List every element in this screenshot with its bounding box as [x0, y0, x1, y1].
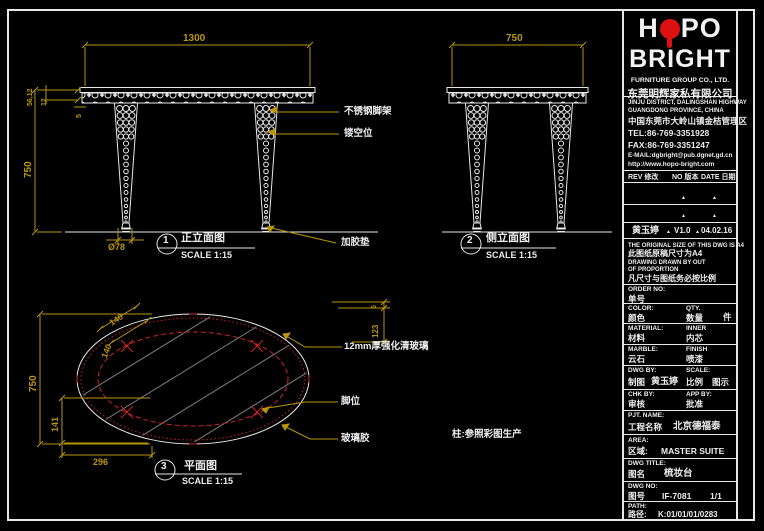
- rev-entry-version: V1.0: [674, 227, 690, 235]
- tblock-divider: [624, 170, 736, 171]
- logo-red-disc-icon: [660, 19, 680, 39]
- field-qty-label-cn: 数量: [686, 314, 703, 323]
- plan-dim-edge-a: 5: [371, 305, 378, 309]
- label-rubber-pad: 加胶垫: [341, 238, 370, 248]
- rev-entry-name: 黄玉婷: [632, 226, 659, 235]
- side-dim-width: 750: [506, 34, 523, 44]
- rev-header-no: NO 版本: [672, 174, 698, 181]
- field-path-label-cn: 路径:: [628, 511, 647, 519]
- logo-line2: BRIGHT: [624, 45, 736, 74]
- field-marble-label-cn: 云石: [628, 355, 645, 364]
- front-dim-top-a: 56,12: [27, 88, 34, 106]
- notice-line2: 此图纸原稿尺寸为A4: [628, 250, 702, 258]
- front-view-marker: 1: [163, 236, 169, 246]
- address-line2: GUANGDONG PROVINCE, CHINA: [628, 108, 724, 114]
- rev-header-rev: REV 修改: [628, 174, 658, 181]
- company-logo: H PO BRIGHT FURNITURE GROUP CO., LTD. 东莞…: [624, 13, 736, 101]
- field-scale-value: 图示: [712, 378, 729, 387]
- tblock-divider: [624, 481, 736, 482]
- tblock-divider: [624, 284, 736, 285]
- field-appby-label-en: APP BY:: [686, 392, 712, 399]
- field-dwgtitle-value: 梳妆台: [664, 469, 693, 479]
- field-material-label-en: MATERIAL:: [628, 326, 663, 333]
- rev-marker-icon: ▲: [681, 214, 686, 219]
- rev-marker-icon: ▲: [712, 196, 717, 201]
- side-view-marker: 2: [467, 236, 473, 246]
- field-area-value: MASTER SUITE: [661, 447, 724, 456]
- field-material-label-cn: 材料: [628, 334, 645, 343]
- label-hollow-position: 镂空位: [344, 129, 373, 139]
- front-dim-top-b: 12: [41, 98, 48, 106]
- side-view-title: 侧立面图: [486, 233, 530, 244]
- field-area-label-cn: 区域:: [628, 447, 648, 456]
- tblock-divider: [624, 182, 736, 183]
- notice-line5: 凡尺寸与图纸务必按比例: [628, 275, 716, 283]
- field-inner-label-en: INNER: [686, 326, 706, 333]
- tblock-divider: [624, 410, 736, 411]
- front-view-scale: SCALE 1:15: [181, 251, 232, 260]
- label-tempered-glass: 12mm厚强化清玻璃: [344, 342, 428, 352]
- field-project-label-cn: 工程名称: [628, 423, 662, 432]
- rev-marker-icon: ▲: [681, 196, 686, 201]
- tblock-divider: [624, 204, 736, 205]
- field-color-label-cn: 颜色: [628, 314, 645, 323]
- logo-letter-h: H: [638, 13, 659, 44]
- field-dwgno-sheet: 1/1: [710, 492, 722, 501]
- field-project-label-en: PJT. NAME:: [628, 413, 664, 420]
- front-dim-top-c: 5: [76, 114, 83, 118]
- address-line3: 中国东莞市大岭山镇金桔管理区: [628, 117, 747, 126]
- rev-marker-icon: ▲: [666, 230, 671, 235]
- field-appby-label-cn: 批准: [686, 400, 703, 409]
- logo-subtitle-en: FURNITURE GROUP CO., LTD.: [624, 77, 736, 84]
- field-qty-unit: 件: [723, 313, 732, 322]
- field-dwgtitle-label-en: DWG TITLE:: [628, 461, 666, 468]
- plan-view-marker: 3: [161, 462, 167, 472]
- tblock-divider: [624, 458, 736, 459]
- front-dim-width: 1300: [183, 34, 205, 44]
- label-glass-glue: 玻璃胶: [341, 434, 370, 444]
- field-marble-label-en: MARBLE:: [628, 347, 658, 354]
- label-leg-position: 脚位: [341, 397, 360, 407]
- field-finish-label-en: FINISH: [686, 347, 707, 354]
- side-view-scale: SCALE 1:15: [486, 251, 537, 260]
- rev-marker-icon: ▲: [695, 230, 700, 235]
- tblock-divider: [624, 238, 736, 239]
- address-email: E-MAIL:dgbright@pub.dgnet.gd.cn: [628, 153, 732, 159]
- tblock-divider: [624, 434, 736, 435]
- notice-line3: DRAWING DRAWN BY OUT: [628, 260, 706, 266]
- front-dim-foot: Ø78: [108, 243, 125, 252]
- logo-letters-po: PO: [681, 13, 722, 44]
- field-scale-label-en: SCALE:: [686, 368, 710, 375]
- tblock-divider: [624, 344, 736, 345]
- field-dwgby-label-en: DWG BY:: [628, 368, 656, 375]
- field-dwgno-label-cn: 图号: [628, 492, 645, 501]
- field-dwgby-label-cn: 制图: [628, 378, 645, 387]
- rev-entry-date: 04.02.16: [701, 227, 732, 235]
- plan-dim-left: 141: [51, 417, 60, 432]
- field-path-value: K:01/01/01/0283: [658, 511, 718, 519]
- address-web: http://www.hopo-bright.com: [628, 162, 714, 169]
- field-dwgno-value: IF-7081: [662, 492, 691, 501]
- tblock-divider: [624, 323, 736, 324]
- plan-dim-bottom: 296: [93, 458, 108, 467]
- rev-header-date: DATE 日期: [701, 174, 735, 181]
- tblock-divider: [624, 365, 736, 366]
- field-order-label-en: ORDER NO:: [628, 287, 665, 294]
- address-line1: JINJU DISTRICT, DALINGSHAN HIGHWAY: [628, 100, 747, 106]
- production-note: 柱:参照彩图生产: [452, 430, 522, 440]
- front-dim-height: 750: [24, 161, 34, 178]
- field-project-value: 北京德福泰: [673, 422, 721, 432]
- logo-subtitle-cn: 东莞明辉家私有限公司: [624, 86, 736, 101]
- front-view-title: 正立面图: [181, 233, 225, 244]
- notice-line4: OF PROPORTION: [628, 267, 678, 273]
- field-dwgno-label-en: DWG NO:: [628, 484, 658, 491]
- tblock-divider: [624, 501, 736, 502]
- field-color-label-en: COLOR:: [628, 306, 654, 313]
- field-dwgtitle-label-cn: 图名: [628, 470, 645, 479]
- tblock-divider: [624, 96, 736, 97]
- tblock-divider: [624, 389, 736, 390]
- address-tel: TEL:86-769-3351928: [628, 129, 709, 138]
- plan-dim-height: 750: [29, 375, 39, 392]
- plan-view-scale: SCALE 1:15: [182, 477, 233, 486]
- field-qty-label-en: QTY.: [686, 306, 700, 313]
- tblock-divider: [624, 222, 736, 223]
- field-area-label-en: AREA:: [628, 438, 649, 445]
- tblock-divider: [624, 303, 736, 304]
- field-scale-label-cn: 比例: [686, 378, 703, 387]
- label-steel-leg: 不锈钢脚架: [344, 107, 392, 117]
- rev-marker-icon: ▲: [712, 214, 717, 219]
- field-dwgby-value: 黄玉婷: [651, 377, 678, 386]
- plan-view-title: 平面图: [184, 461, 217, 472]
- field-chkby-label-cn: 审核: [628, 400, 645, 409]
- cad-drawing-sheet: 1300 750 56,12 12 5 Ø78 不锈钢脚架 镂空位 加胶垫 1 …: [0, 0, 764, 531]
- address-fax: FAX:86-769-3351247: [628, 141, 710, 150]
- field-inner-label-cn: 内芯: [686, 334, 703, 343]
- field-finish-label-cn: 喷漆: [686, 355, 703, 364]
- logo-line1: H PO: [624, 13, 736, 44]
- plan-dim-edge-b: 123: [372, 325, 380, 338]
- field-chkby-label-en: CHK BY:: [628, 392, 655, 399]
